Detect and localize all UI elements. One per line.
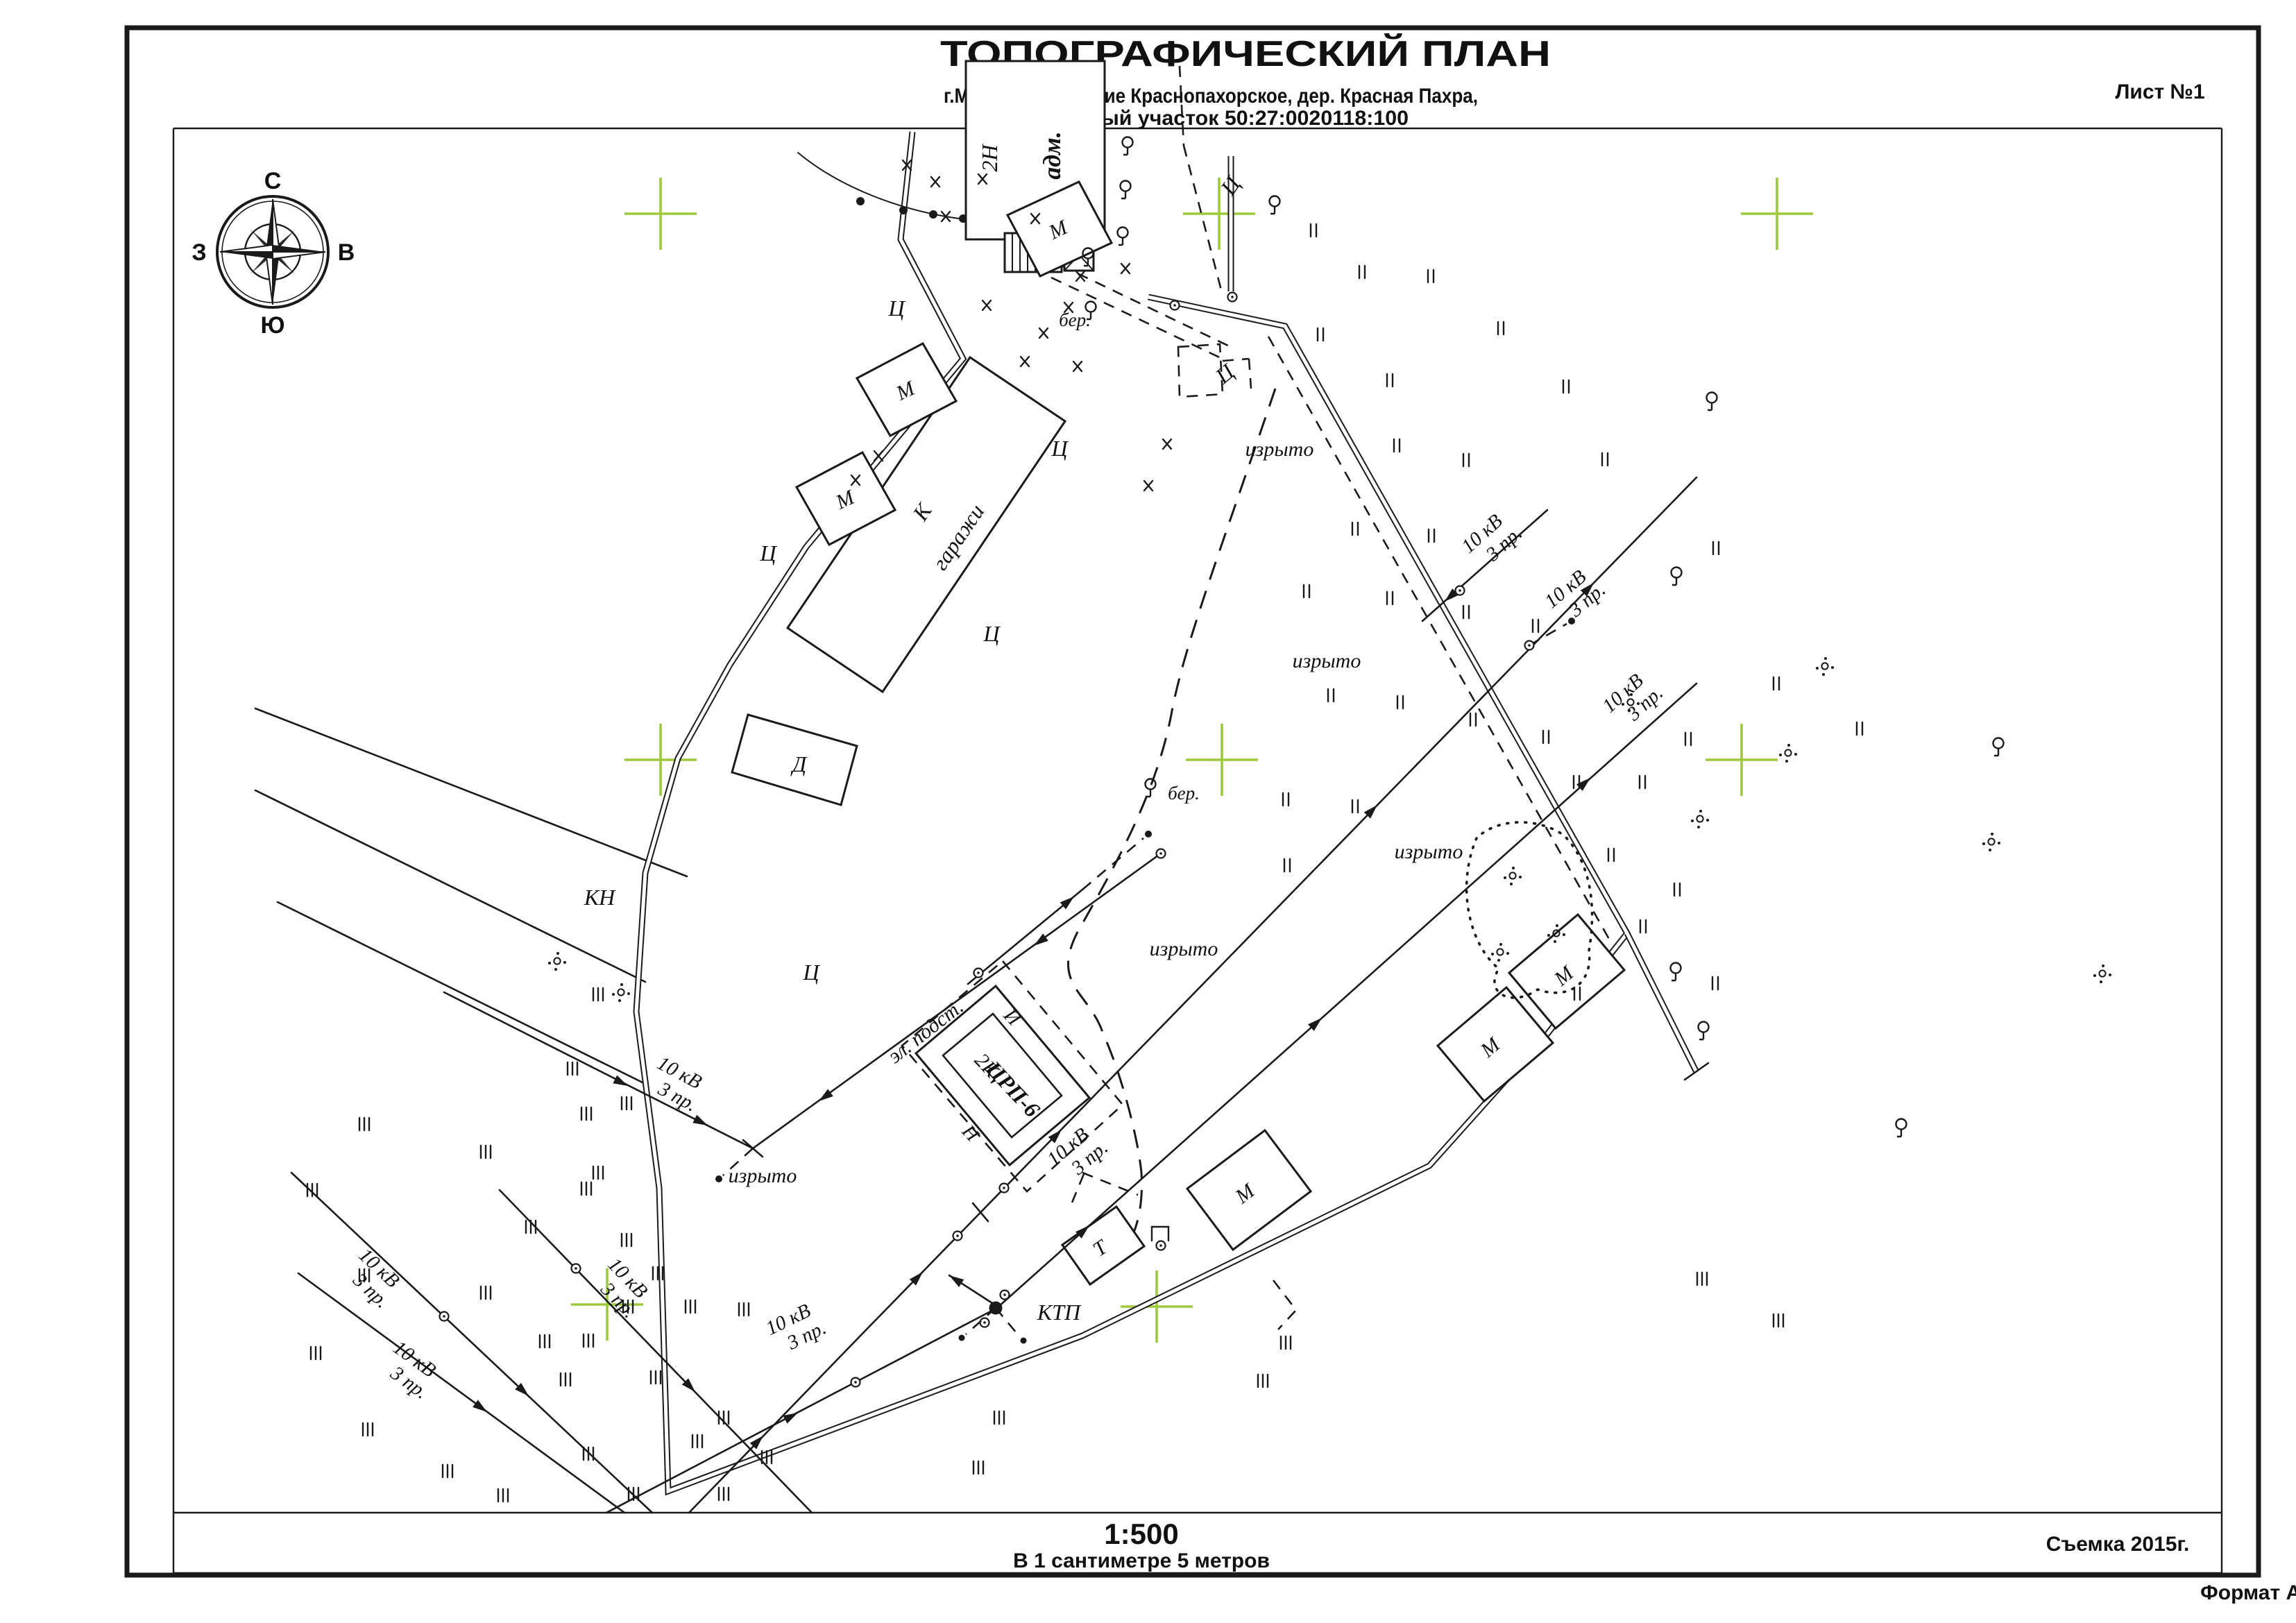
map-label: изрыто (1245, 438, 1314, 461)
map-label: 2Н (977, 144, 1002, 172)
powerline-label: 10 кВ3 пр. (1457, 506, 1527, 575)
survey-year: Съемка 2015г. (2046, 1533, 2190, 1556)
powerline-label: 10 кВ3 пр. (1043, 1119, 1112, 1187)
scale-value: 1:500 (1104, 1518, 1178, 1550)
compass-north: С (264, 168, 282, 194)
vegetation (307, 137, 2111, 1502)
powerline-label: 10 кВ3 пр. (643, 1052, 711, 1116)
ktp-junction (949, 1275, 1027, 1344)
map-label: изрыто (729, 1164, 797, 1187)
site-boundary-fence (636, 132, 1708, 1491)
map-label: Д (790, 751, 808, 776)
compass-rose: С Ю З В (192, 168, 355, 339)
parcel-lines (255, 708, 687, 1084)
sheet-a3: ТОПОГРАФИЧЕСКИЙ ПЛАН г.Москва, поселение… (0, 0, 2296, 1623)
dashed-paths (1051, 66, 1610, 1329)
pole-gate-symbol (1152, 1227, 1168, 1241)
map-labels: 2Надм.бер.бер.ЦЦЦЦЦЦЦКНКгаражиДММММММизр… (339, 131, 1667, 1404)
map-label: Ц (1051, 436, 1069, 461)
map-label: бер. (1168, 783, 1200, 804)
map-label: изрыто (1395, 840, 1463, 863)
map-label: изрыто (1150, 937, 1218, 960)
map-label: Ц (759, 541, 777, 566)
map-label: Ц (983, 621, 1001, 646)
map-label: Ц (1210, 358, 1240, 389)
powerline-label: 10 кВ3 пр. (339, 1244, 409, 1313)
map-label: КТП (1037, 1300, 1082, 1325)
footer-block: 1:500 В 1 сантиметре 5 метров Съемка 201… (1013, 1518, 2296, 1604)
scale-note: В 1 сантиметре 5 метров (1013, 1549, 1270, 1572)
powerline-label: 10 кВ3 пр. (763, 1297, 830, 1360)
topographic-plan: ТОПОГРАФИЧЕСКИЙ ПЛАН г.Москва, поселение… (0, 0, 2296, 1623)
powerline-label: 10 кВ3 пр. (376, 1336, 445, 1404)
powerline-label: 10 кВ3 пр. (1598, 665, 1667, 734)
map-label: Ц (887, 296, 905, 321)
map-label: КН (584, 885, 616, 910)
compass-east: В (338, 239, 355, 266)
map-label: адм. (1038, 131, 1066, 180)
compass-west: З (192, 239, 206, 266)
powerline-label: 10 кВ3 пр. (1540, 561, 1610, 629)
map-label: изрыто (1293, 649, 1361, 672)
powerline-label: 10 кВ3 пр. (587, 1253, 656, 1323)
title-block: ТОПОГРАФИЧЕСКИЙ ПЛАН г.Москва, поселение… (940, 33, 2205, 130)
sheet-number: Лист №1 (2115, 80, 2204, 103)
format-label: Формат А3 (2200, 1581, 2296, 1604)
compass-star (220, 199, 325, 305)
map-label: Ц (802, 960, 820, 985)
compass-south: Ю (260, 312, 284, 339)
map-label: бер. (1059, 309, 1091, 330)
